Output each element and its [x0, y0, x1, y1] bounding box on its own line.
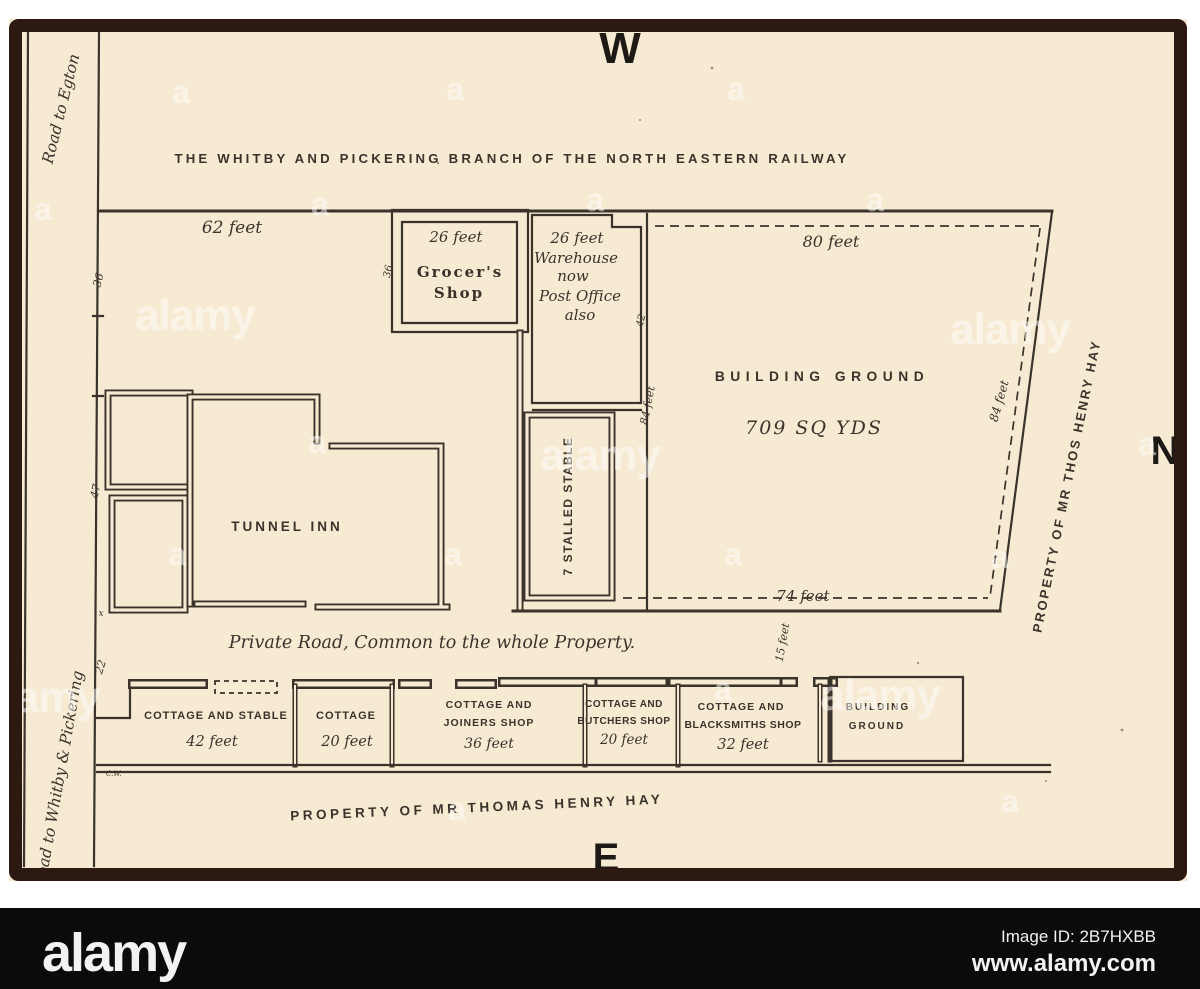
watermark-letter: a: [311, 186, 329, 222]
watermark-letter: a: [866, 182, 884, 218]
watermark-letter: a: [172, 74, 190, 110]
stock-photo-scanned-plan: W N E THE WHITBY AND PICKERING BRANCH OF…: [0, 0, 1200, 989]
grocer-name-line1: Grocer's: [417, 263, 503, 281]
private-road-label: Private Road, Common to the whole Proper…: [228, 633, 635, 653]
warehouse-line3: Post Office: [538, 287, 621, 305]
cottage5-name-line1: COTTAGE AND: [698, 701, 785, 713]
cottage1-dim: 42 feet: [185, 734, 238, 750]
watermark-letter: a: [724, 536, 742, 572]
building-ground-bottom-dim: 74 feet: [776, 587, 830, 605]
building-ground-top-dim: 80 feet: [803, 232, 860, 251]
watermark-logo: alamy: [820, 671, 941, 720]
watermark-letter: a: [446, 71, 464, 107]
footer-url: www.alamy.com: [971, 950, 1156, 977]
frontage-62ft: 62 feet: [202, 218, 262, 238]
watermark-letter: a: [586, 182, 604, 218]
margin-left: [0, 0, 9, 908]
cottage4-name-line1: COTTAGE AND: [585, 699, 663, 710]
plan-canvas: W N E THE WHITBY AND PICKERING BRANCH OF…: [0, 0, 1200, 989]
footer-image-id: Image ID: 2B7HXBB: [1001, 927, 1156, 946]
tunnel-inn-label: TUNNEL INN: [231, 519, 343, 534]
building-ground-area: 709 SQ YDS: [745, 417, 883, 439]
warehouse-line2: now: [557, 267, 589, 285]
watermark-letter: a: [34, 191, 52, 227]
grocer-dim: 26 feet: [428, 228, 483, 246]
watermark-letter: a: [168, 536, 186, 572]
cottage3-name-line1: COTTAGE AND: [446, 699, 533, 711]
margin-bottom: [0, 881, 1200, 908]
railway-title: THE WHITBY AND PICKERING BRANCH OF THE N…: [174, 151, 849, 166]
south-building-ground-line2: GROUND: [849, 721, 905, 732]
watermark-letter: a: [727, 71, 745, 107]
grocer-name-line2: Shop: [434, 284, 484, 302]
warehouse-line1: Warehouse: [534, 249, 618, 267]
watermark-letter: a: [444, 536, 462, 572]
cottage3-name-line2: JOINERS SHOP: [444, 717, 535, 729]
cottage4-name-line2: BUTCHERS SHOP: [577, 716, 670, 727]
cottage2-name: COTTAGE: [316, 710, 376, 722]
margin-top: [0, 0, 1200, 19]
mark-cw: C.W.: [106, 770, 122, 778]
cottage5-dim: 32 feet: [717, 737, 769, 753]
warehouse-line4: also: [565, 306, 595, 324]
alamy-logo: alamy: [42, 923, 187, 983]
watermark-letter: a: [714, 671, 732, 707]
watermark-logo: alamy: [540, 431, 661, 480]
cottage1-name: COTTAGE AND STABLE: [144, 710, 288, 722]
watermark-logo: alamy: [950, 305, 1071, 354]
mark-x: x: [98, 609, 103, 619]
building-ground-name: BUILDING GROUND: [715, 369, 929, 384]
watermark-letter: a: [1001, 783, 1019, 819]
alamy-footer-bar: alamy Image ID: 2B7HXBB www.alamy.com: [0, 908, 1200, 989]
watermark-letter: a: [308, 424, 326, 460]
watermark-letter: a: [1138, 426, 1156, 462]
margin-right: [1187, 0, 1200, 908]
cottage5-name-line2: BLACKSMITHS SHOP: [684, 719, 801, 731]
watermark-letter: a: [448, 791, 466, 827]
cottage4-dim: 20 feet: [599, 732, 648, 748]
cottage2-dim: 20 feet: [320, 734, 373, 750]
cottage3-dim: 36 feet: [464, 736, 514, 752]
watermark-logo: alamy: [135, 291, 256, 340]
warehouse-dim: 26 feet: [549, 229, 604, 247]
watermark-letter: a: [991, 539, 1009, 575]
